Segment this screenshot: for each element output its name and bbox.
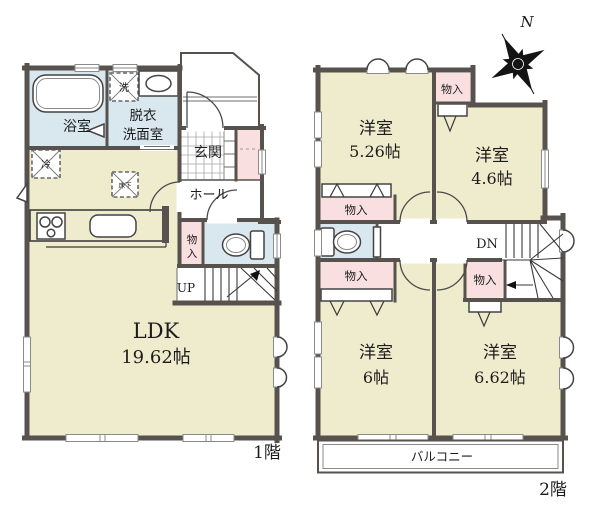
toilet-2f-door bbox=[374, 227, 381, 257]
label-room-nw-size: 5.26帖 bbox=[349, 142, 401, 161]
floorplan-svg: 浴室 脱衣 洗面室 玄関 ホール LDK 19.62帖 UP 物 入 洗 冷 床… bbox=[0, 0, 600, 525]
label-ldk-size: 19.62帖 bbox=[121, 347, 191, 368]
label-room-sw: 洋室 bbox=[359, 343, 393, 363]
label-storage-1f-c2: 入 bbox=[187, 248, 198, 260]
label-balcony: バルコニー bbox=[411, 449, 473, 464]
casement-right-1 bbox=[277, 337, 287, 357]
floor-2-plan: 洋室 5.26帖 洋室 4.6帖 洋室 6帖 洋室 6.62帖 物入 物入 物入… bbox=[315, 59, 575, 500]
label-closet-wl: 物入 bbox=[345, 269, 368, 283]
washroom-door-gap bbox=[140, 145, 174, 151]
kitchen-stub-wall bbox=[162, 206, 169, 243]
label-dressing-2: 洗面室 bbox=[123, 126, 164, 143]
label-room-ne: 洋室 bbox=[475, 146, 509, 166]
label-hall: ホール bbox=[189, 188, 228, 203]
shoe-closet bbox=[236, 128, 260, 180]
ldk-door-gap bbox=[177, 182, 184, 212]
basin-bowl bbox=[146, 76, 171, 92]
porch bbox=[181, 53, 259, 128]
casement-right-2 bbox=[277, 368, 287, 387]
label-entrance: 玄関 bbox=[194, 144, 222, 161]
label-closet-top: 物入 bbox=[441, 82, 463, 96]
label-room-nw: 洋室 bbox=[359, 119, 393, 139]
kitchen-sink bbox=[90, 215, 136, 237]
label-bath: 浴室 bbox=[63, 118, 91, 135]
toilet-1f bbox=[223, 231, 265, 259]
label-closet-e: 物入 bbox=[474, 273, 497, 287]
label-floor-1: 1階 bbox=[253, 443, 281, 463]
label-ldk: LDK bbox=[133, 319, 180, 343]
bathtub bbox=[33, 75, 103, 112]
compass: N bbox=[476, 13, 561, 108]
floor-1-plan: 浴室 脱衣 洗面室 玄関 ホール LDK 19.62帖 UP 物 入 洗 冷 床… bbox=[17, 53, 287, 463]
label-room-ne-size: 4.6帖 bbox=[471, 169, 512, 188]
label-room-sw-size: 6帖 bbox=[363, 368, 389, 387]
label-room-se-size: 6.62帖 bbox=[474, 368, 526, 387]
label-dn: DN bbox=[476, 237, 498, 252]
label-underfloor: 床下 bbox=[119, 181, 133, 190]
casement-window-left bbox=[17, 184, 27, 202]
entrance-door-gap bbox=[186, 125, 224, 132]
label-floor-2: 2階 bbox=[539, 480, 567, 500]
label-room-se: 洋室 bbox=[483, 343, 517, 363]
compass-north-label: N bbox=[519, 13, 534, 31]
toilet-2f bbox=[321, 228, 361, 256]
label-fridge: 冷 bbox=[41, 158, 51, 171]
label-closet-wu: 物入 bbox=[345, 203, 368, 217]
toilet-door-gap bbox=[207, 217, 237, 224]
label-storage-1f-c1: 物 bbox=[187, 233, 198, 246]
floorplan-image: 浴室 脱衣 洗面室 玄関 ホール LDK 19.62帖 UP 物 入 洗 冷 床… bbox=[0, 0, 600, 525]
label-dressing-1: 脱衣 bbox=[130, 108, 157, 124]
label-up: UP bbox=[177, 281, 195, 295]
label-washer: 洗 bbox=[119, 82, 129, 94]
